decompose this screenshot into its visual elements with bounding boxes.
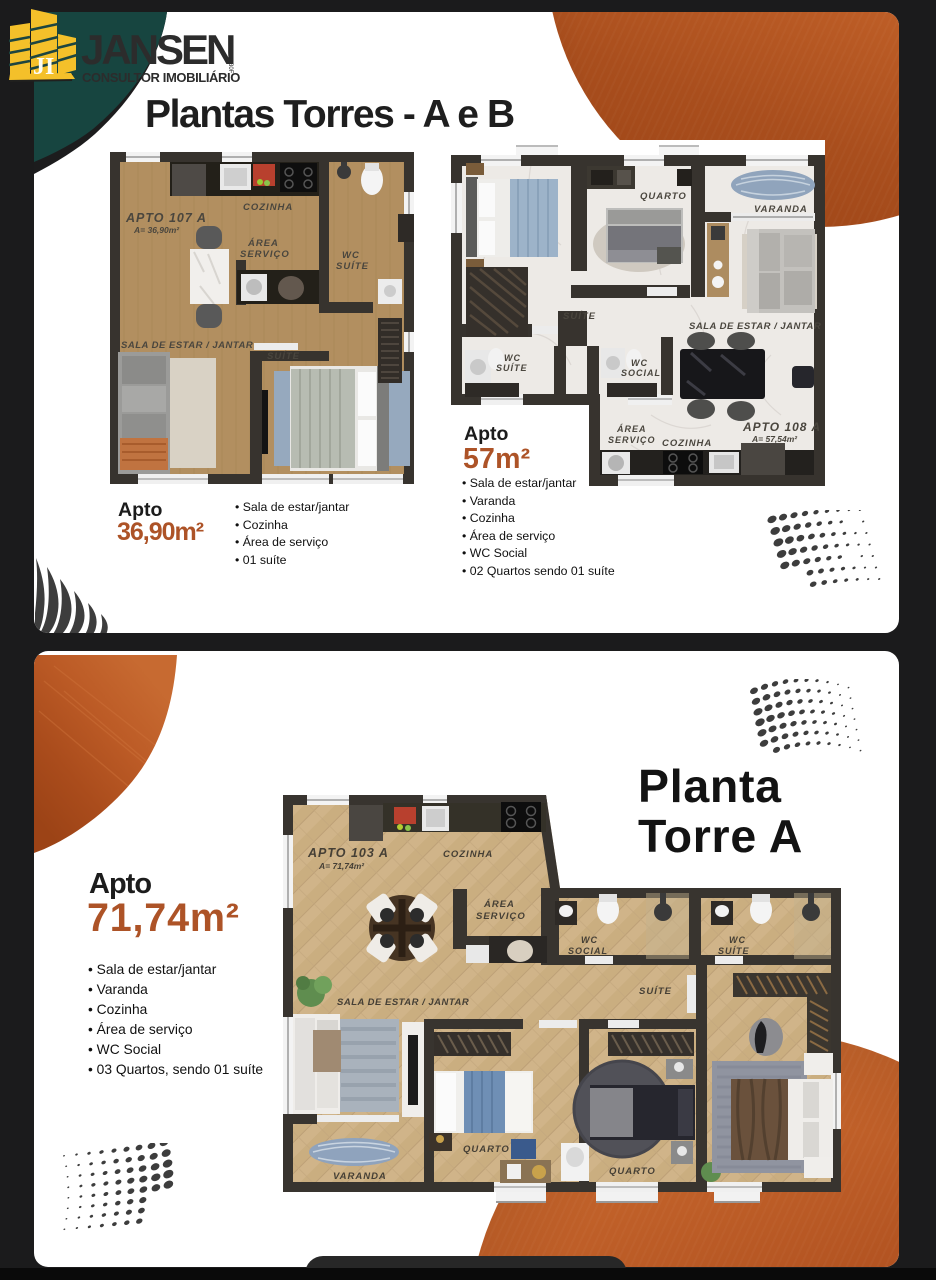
svg-text:WC: WC (581, 935, 598, 945)
svg-text:APTO 107 A: APTO 107 A (125, 211, 207, 225)
svg-text:A= 57,54m²: A= 57,54m² (751, 434, 798, 444)
svg-text:QUARTO: QUARTO (609, 1166, 656, 1177)
svg-text:SERVIÇO: SERVIÇO (608, 435, 656, 445)
svg-text:SALA DE ESTAR / JANTAR: SALA DE ESTAR / JANTAR (689, 321, 821, 332)
svg-text:ÁREA: ÁREA (616, 424, 647, 434)
svg-text:COZINHA: COZINHA (662, 438, 712, 449)
svg-text:APTO 103 A: APTO 103 A (307, 846, 389, 860)
svg-text:WC: WC (729, 935, 746, 945)
svg-text:SUÍTE: SUÍTE (718, 946, 750, 956)
svg-text:SALA DE ESTAR / JANTAR: SALA DE ESTAR / JANTAR (337, 997, 469, 1008)
svg-text:WC: WC (631, 358, 648, 368)
svg-text:APTO 108 A: APTO 108 A (742, 420, 821, 434)
svg-text:SUÍTE: SUÍTE (336, 261, 369, 272)
svg-text:SOCIAL: SOCIAL (568, 946, 608, 956)
svg-text:VARANDA: VARANDA (333, 1171, 387, 1182)
svg-text:SUÍTE: SUÍTE (267, 351, 300, 362)
svg-text:JI: JI (33, 54, 54, 80)
svg-text:QUARTO: QUARTO (640, 191, 687, 202)
svg-text:SALA DE ESTAR / JANTAR: SALA DE ESTAR / JANTAR (121, 340, 253, 351)
svg-text:ÁREA: ÁREA (483, 899, 515, 910)
svg-text:SERVIÇO: SERVIÇO (476, 911, 526, 922)
svg-text:COZINHA: COZINHA (443, 849, 493, 860)
svg-text:A= 71,74m²: A= 71,74m² (318, 861, 365, 871)
svg-text:VARANDA: VARANDA (754, 204, 808, 215)
svg-text:QUARTO: QUARTO (463, 1144, 510, 1155)
svg-text:WC: WC (342, 250, 360, 261)
svg-text:SUÍTE: SUÍTE (496, 363, 528, 373)
svg-text:SOCIAL: SOCIAL (621, 368, 661, 378)
svg-text:WC: WC (504, 353, 521, 363)
svg-text:SUÍTE: SUÍTE (563, 311, 596, 322)
svg-text:ÁREA: ÁREA (247, 238, 279, 249)
svg-text:SUÍTE: SUÍTE (639, 986, 672, 997)
svg-text:COZINHA: COZINHA (243, 202, 293, 213)
svg-text:A= 36,90m²: A= 36,90m² (133, 225, 180, 235)
svg-text:SERVIÇO: SERVIÇO (240, 249, 290, 260)
